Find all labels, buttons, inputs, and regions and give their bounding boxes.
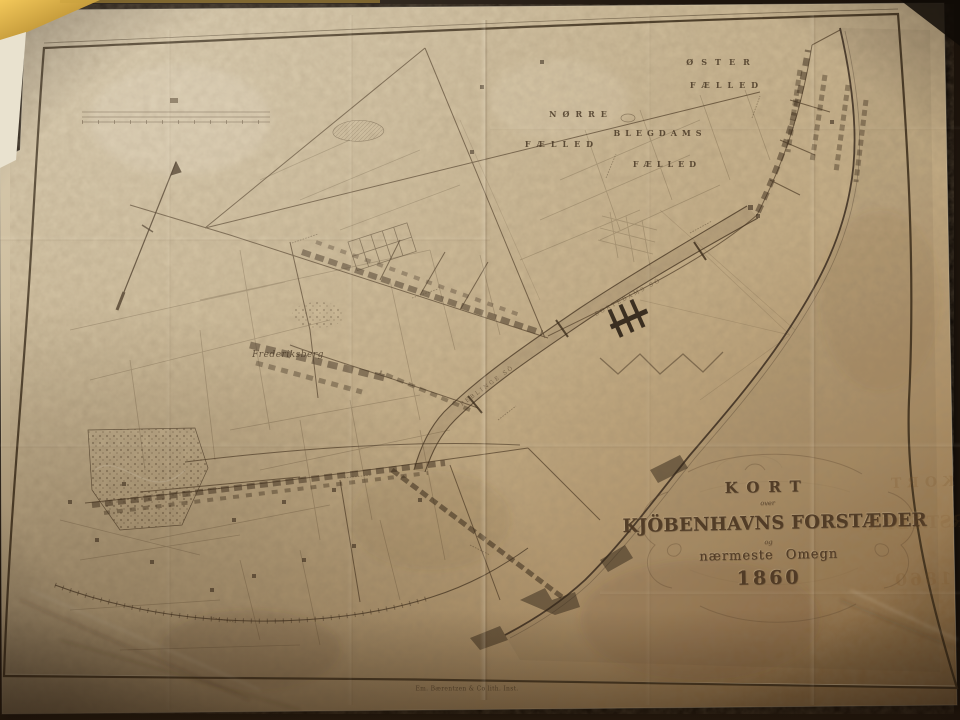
framed-map-photo: SORTEDAMS SÖ PEBLINGE SÖ [0,0,960,720]
vignette [0,0,960,720]
map-drawing: SORTEDAMS SÖ PEBLINGE SÖ [0,0,960,720]
frame-top-sliver [60,0,380,3]
